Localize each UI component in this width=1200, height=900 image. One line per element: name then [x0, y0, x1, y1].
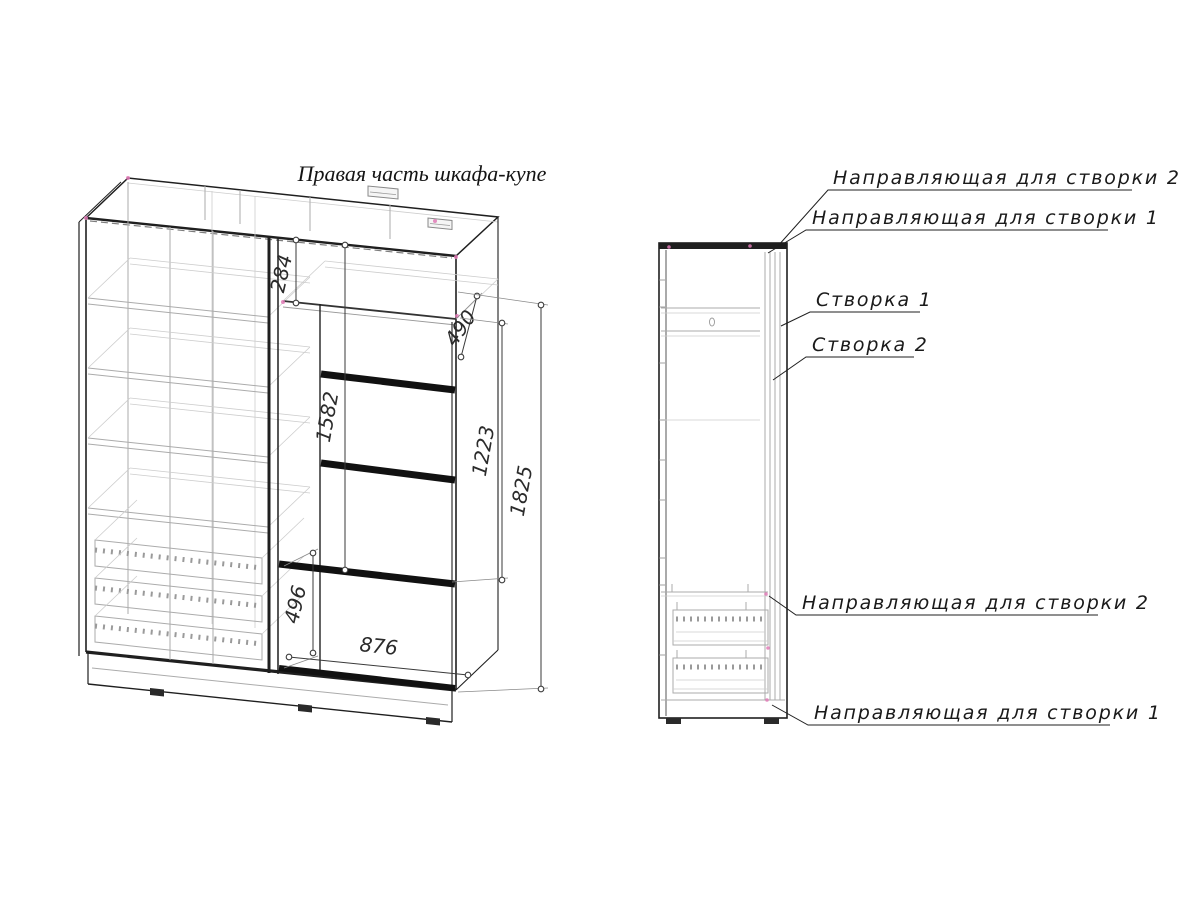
dim-label-1582: 1582: [311, 390, 343, 444]
dim-label-1825: 1825: [505, 464, 537, 518]
dimension-1825: 1825: [458, 292, 548, 692]
side-door-tracks: [765, 252, 780, 700]
dimension-490: 490: [439, 293, 482, 360]
main-view: 284 490 1582 1223: [79, 176, 548, 726]
foot: [426, 717, 440, 726]
technical-drawing-canvas: Правая часть шкафа-купе: [0, 0, 1200, 900]
door-rail-band: [279, 564, 455, 584]
dim-label-490: 490: [439, 305, 481, 350]
shelf: [88, 398, 310, 463]
side-drawer: [673, 650, 768, 693]
shelf: [88, 468, 310, 533]
callouts: Направляющая для створки 2 Направляющая …: [768, 167, 1181, 725]
center-divider: [269, 237, 278, 674]
callout-rail1-bottom: Направляющая для створки 1: [772, 702, 1162, 725]
foot: [666, 718, 681, 724]
callout-label: Створка 2: [812, 334, 929, 356]
dim-label-876: 876: [358, 632, 398, 660]
drawing-page: Правая часть шкафа-купе: [0, 0, 1200, 900]
side-top-rail: [659, 243, 787, 249]
cam-lock-icon: [710, 318, 715, 326]
side-shelves: [661, 308, 768, 596]
fitting-markers: [84, 176, 459, 318]
drawing-title: Правая часть шкафа-купе: [297, 161, 547, 186]
callout-door2: Створка 2: [773, 334, 929, 380]
callout-label: Направляющая для створки 2: [833, 167, 1181, 189]
callout-label: Направляющая для створки 1: [814, 702, 1162, 724]
shelf: [88, 328, 310, 393]
dim-label-496: 496: [279, 583, 311, 626]
left-drawer-stack: [95, 500, 304, 660]
side-view: [659, 243, 787, 724]
side-base: [661, 700, 785, 724]
door-rail-band: [321, 374, 455, 390]
callout-rail2-bottom: Направляющая для створки 2: [769, 592, 1150, 615]
foot: [764, 718, 779, 724]
wardrobe-top-panel: [86, 178, 498, 258]
dimension-1582: 1582: [311, 242, 348, 573]
side-drawer: [673, 602, 768, 645]
door-rail-band: [321, 463, 455, 480]
callout-rail1-top: Направляющая для створки 1: [768, 207, 1160, 253]
top-fitting-icon: [368, 186, 398, 199]
top-fitting-icon: [428, 218, 452, 230]
dimensions: 284 490 1582 1223: [265, 237, 548, 692]
dim-label-1223: 1223: [467, 424, 499, 478]
callout-label: Направляющая для створки 2: [802, 592, 1150, 614]
callout-door1: Створка 1: [781, 289, 933, 326]
callout-label: Направляющая для створки 1: [812, 207, 1160, 229]
foot: [150, 688, 164, 697]
callout-label: Створка 1: [816, 289, 933, 311]
foot: [298, 704, 312, 713]
